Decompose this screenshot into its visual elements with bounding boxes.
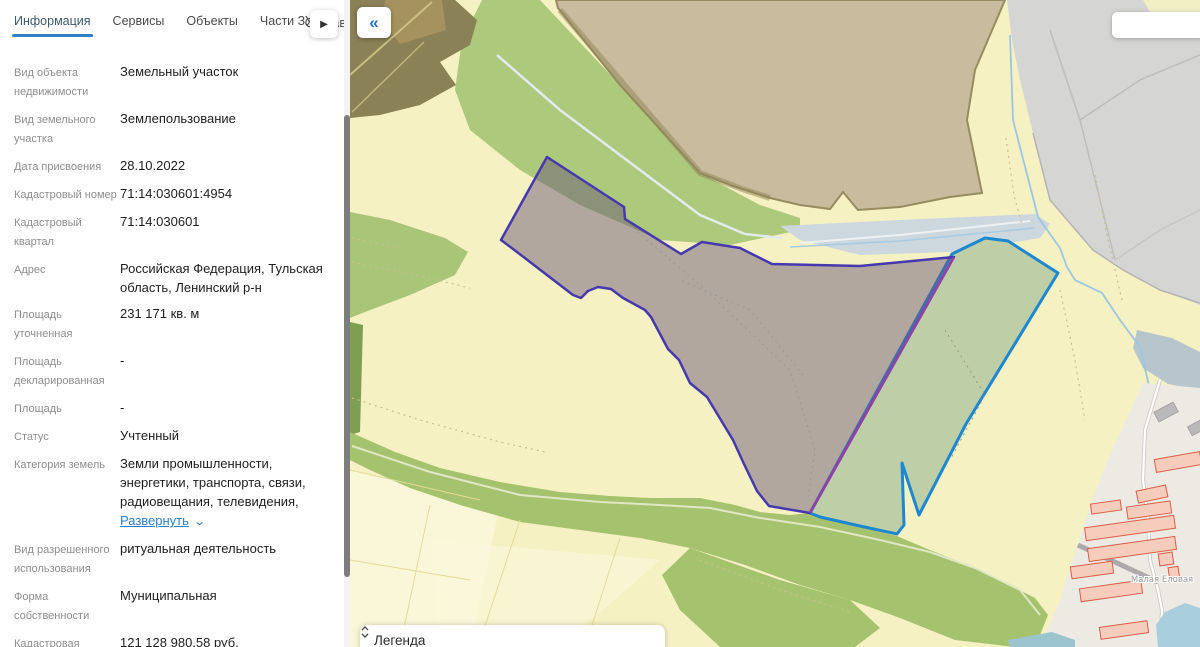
map-canvas[interactable]: Малая Еловая xyxy=(350,0,1200,647)
field-label: Кадастровая стоимость xyxy=(14,633,120,647)
tabs-scroll-right-button[interactable]: ▶ xyxy=(310,10,338,38)
place-label: Малая Еловая xyxy=(1131,575,1193,585)
field-value: Землепользование xyxy=(120,109,328,149)
field-value: 71:14:030601 xyxy=(120,212,328,252)
chevron-right-icon: ▶ xyxy=(320,19,328,30)
collapse-panel-button[interactable]: « xyxy=(357,7,391,38)
info-row-parcel-kind: Вид земельного участка Землепользование xyxy=(14,109,328,149)
panel-tabs: Информация Сервисы Объекты Части ЗУ Сост… xyxy=(0,0,350,46)
info-row-status: Статус Учтенный xyxy=(14,426,328,447)
info-row-area: Площадь - xyxy=(14,398,328,419)
info-row-cadastral-cost: Кадастровая стоимость 121 128 980,58 руб… xyxy=(14,633,328,647)
field-value: - xyxy=(120,351,328,391)
info-row-area-declared: Площадь декларированная - xyxy=(14,351,328,391)
field-label: Вид земельного участка xyxy=(14,109,120,149)
info-row-ownership-form: Форма собственности Муниципальная xyxy=(14,586,328,626)
field-label: Дата присвоения xyxy=(14,156,120,177)
info-row-address: Адрес Российская Федерация, Тульская обл… xyxy=(14,259,328,297)
field-value: 231 171 кв. м xyxy=(120,304,328,344)
map-toolbar-box[interactable] xyxy=(1112,12,1200,38)
info-row-permitted-use: Вид разрешенного использования ритуальна… xyxy=(14,539,328,579)
tab-objects[interactable]: Объекты xyxy=(186,14,238,37)
info-row-object-type: Вид объекта недвижимости Земельный участ… xyxy=(14,62,328,102)
sidebar-scrollbar[interactable] xyxy=(344,0,350,647)
field-value: Учтенный xyxy=(120,426,328,447)
field-label: Статус xyxy=(14,426,120,447)
field-label: Площадь декларированная xyxy=(14,351,120,391)
tab-services[interactable]: Сервисы xyxy=(113,14,165,37)
info-row-cadastral-quarter: Кадастровый квартал 71:14:030601 xyxy=(14,212,328,252)
field-label: Площадь xyxy=(14,398,120,419)
tab-information[interactable]: Информация xyxy=(14,14,91,37)
field-value: 28.10.2022 xyxy=(120,156,328,177)
field-value: Земли промышленности, энергетики, трансп… xyxy=(120,454,328,532)
info-row-land-category: Категория земель Земли промышленности, э… xyxy=(14,454,328,532)
field-value: 71:14:030601:4954 xyxy=(120,184,328,205)
field-value: Муниципальная xyxy=(120,586,328,626)
info-row-area-refined: Площадь уточненная 231 171 кв. м xyxy=(14,304,328,344)
field-value: - xyxy=(120,398,328,419)
field-label: Кадастровый номер xyxy=(14,184,120,205)
field-value: ритуальная деятельность xyxy=(120,539,328,579)
parcel-info-list: Вид объекта недвижимости Земельный участ… xyxy=(0,46,350,647)
chevron-down-icon[interactable]: ⌄ xyxy=(193,513,206,532)
field-label: Вид объекта недвижимости xyxy=(14,62,120,102)
map-viewport[interactable]: Малая Еловая « Легенда xyxy=(350,0,1200,647)
legend-bar[interactable]: Легенда xyxy=(360,625,665,647)
field-label: Вид разрешенного использования xyxy=(14,539,120,579)
legend-title: Легенда xyxy=(374,633,425,647)
field-label: Категория земель xyxy=(14,454,120,532)
field-label: Адрес xyxy=(14,259,120,297)
info-row-assign-date: Дата присвоения 28.10.2022 xyxy=(14,156,328,177)
field-label: Форма собственности xyxy=(14,586,120,626)
chevrons-left-icon: « xyxy=(369,13,378,33)
scrollbar-thumb[interactable] xyxy=(344,115,350,577)
field-value: Земельный участок xyxy=(120,62,328,102)
field-label: Кадастровый квартал xyxy=(14,212,120,252)
field-value: Российская Федерация, Тульская область, … xyxy=(120,259,328,297)
field-value: 121 128 980,58 руб. xyxy=(120,633,328,647)
land-category-text: Земли промышленности, энергетики, трансп… xyxy=(120,456,306,509)
expand-link[interactable]: Развернуть xyxy=(120,513,189,528)
field-label: Площадь уточненная xyxy=(14,304,120,344)
cadastral-map-app: Информация Сервисы Объекты Части ЗУ Сост… xyxy=(0,0,1200,647)
info-panel: Информация Сервисы Объекты Части ЗУ Сост… xyxy=(0,0,350,647)
info-row-cadastral-number: Кадастровый номер 71:14:030601:4954 xyxy=(14,184,328,205)
